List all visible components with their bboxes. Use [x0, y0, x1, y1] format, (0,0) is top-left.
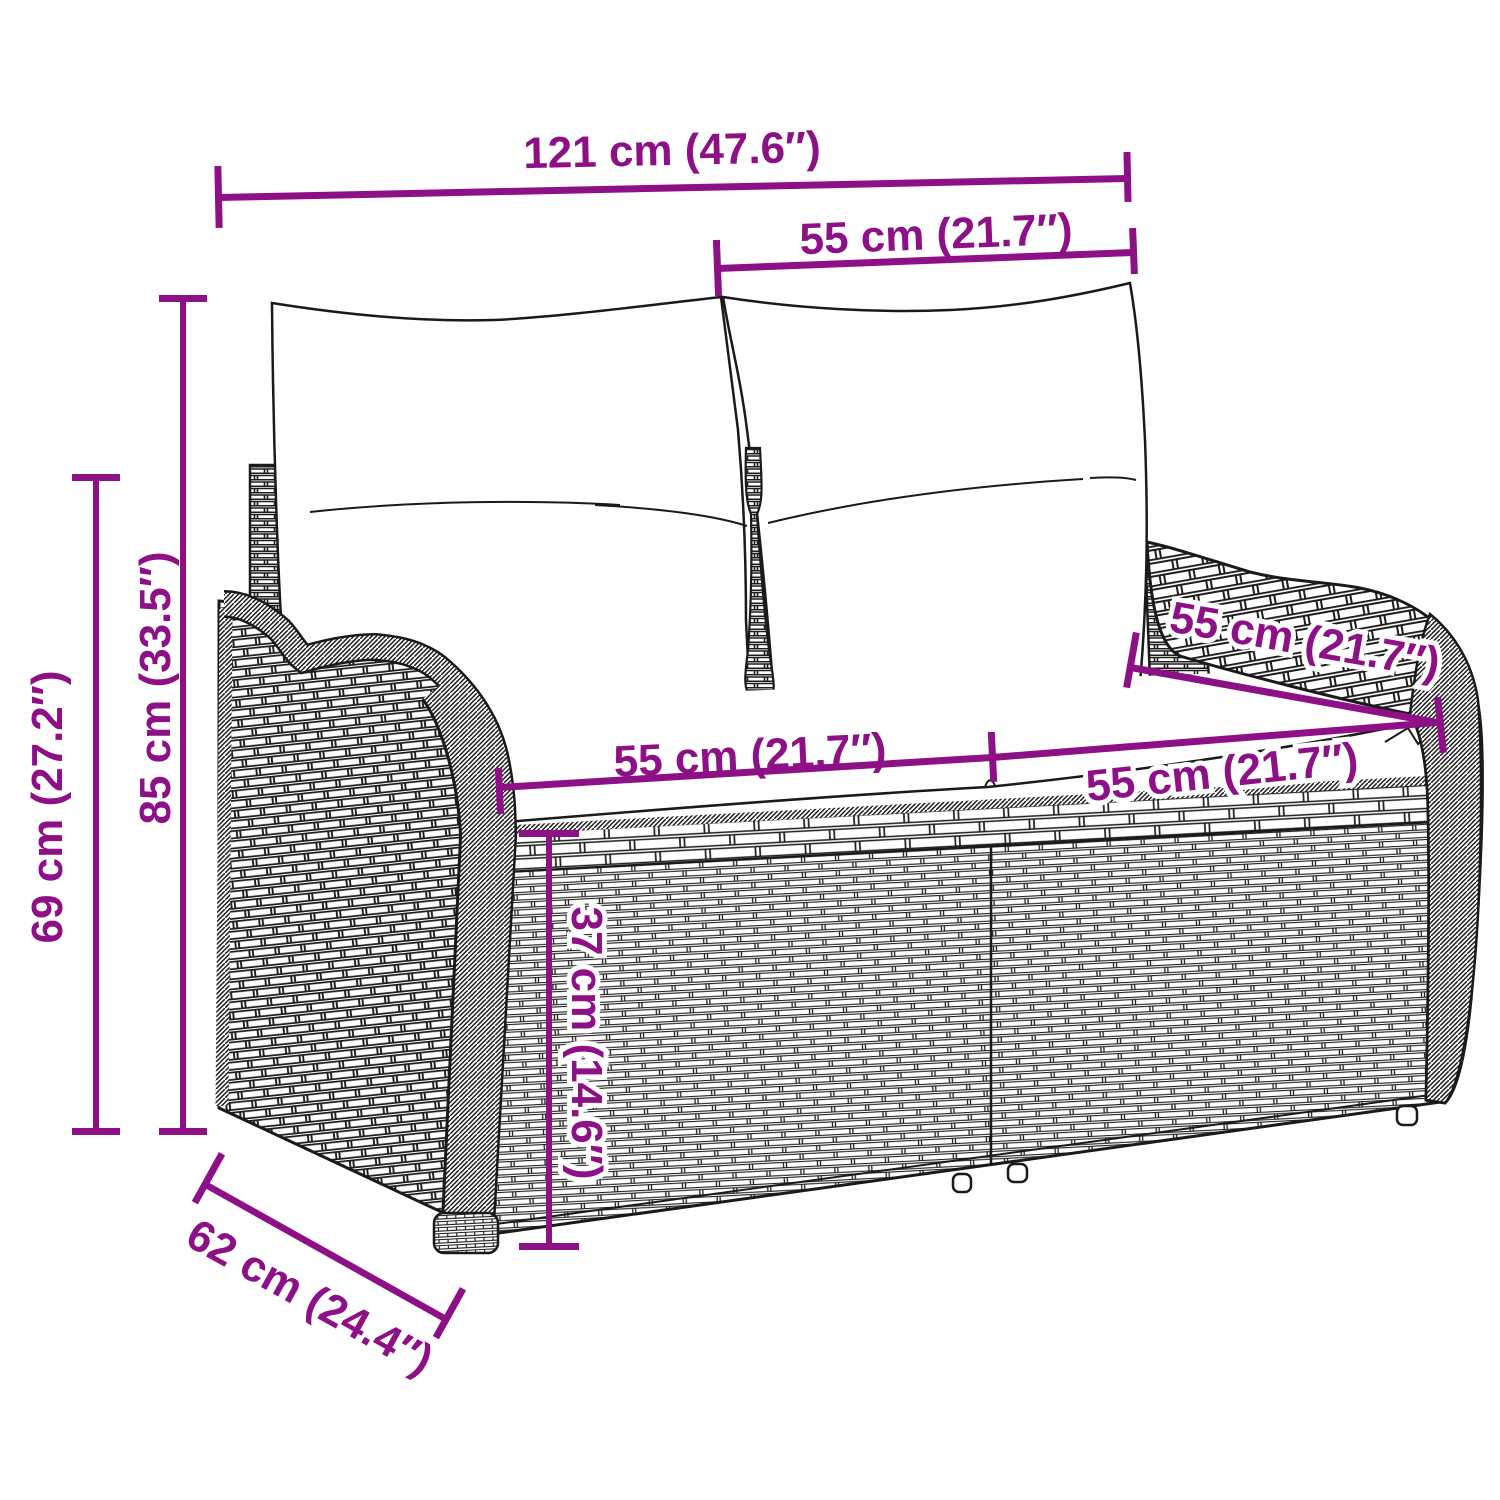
svg-text:37 cm (14.6″): 37 cm (14.6″) [562, 906, 611, 1179]
svg-text:55 cm (21.7″): 55 cm (21.7″) [799, 205, 1074, 264]
svg-text:85 cm (33.5″): 85 cm (33.5″) [131, 551, 180, 824]
svg-text:69 cm (27.2″): 69 cm (27.2″) [23, 670, 72, 943]
svg-text:121 cm (47.6″): 121 cm (47.6″) [523, 123, 821, 178]
